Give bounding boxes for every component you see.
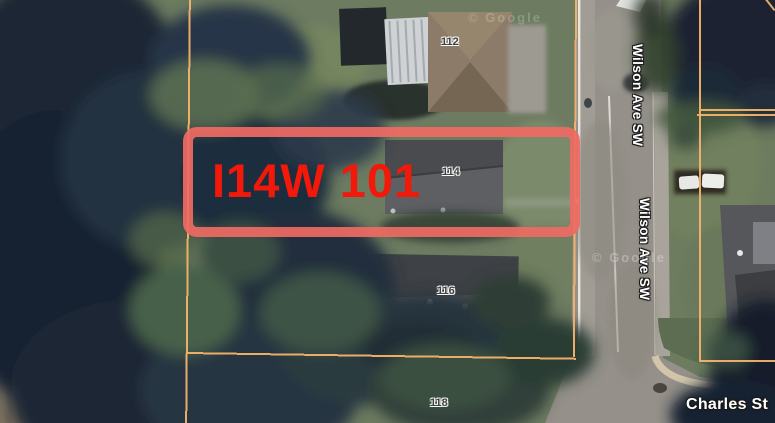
house-number-118: 118 bbox=[430, 397, 448, 409]
parcel-highlight-label: I14W 101 bbox=[212, 157, 421, 204]
parcel-line-east bbox=[699, 0, 701, 362]
house-number-114: 114 bbox=[442, 166, 460, 178]
map-watermark-secondary: © Google bbox=[468, 10, 542, 25]
parcel-line-northeast-1 bbox=[701, 109, 775, 111]
house-number-112: 112 bbox=[441, 36, 459, 48]
street-label-charles-st: Charles St bbox=[686, 396, 768, 414]
map-watermark: © Google bbox=[592, 250, 666, 265]
parcel-line-southeast bbox=[700, 360, 775, 362]
parcel-line-northeast-2 bbox=[697, 114, 775, 116]
street-label-wilson-ave-sw-1: Wilson Ave SW bbox=[630, 44, 645, 146]
house-number-116: 116 bbox=[437, 285, 455, 297]
map-canvas[interactable]: I14W 101 Wilson Ave SW Wilson Ave SW Cha… bbox=[0, 0, 775, 423]
